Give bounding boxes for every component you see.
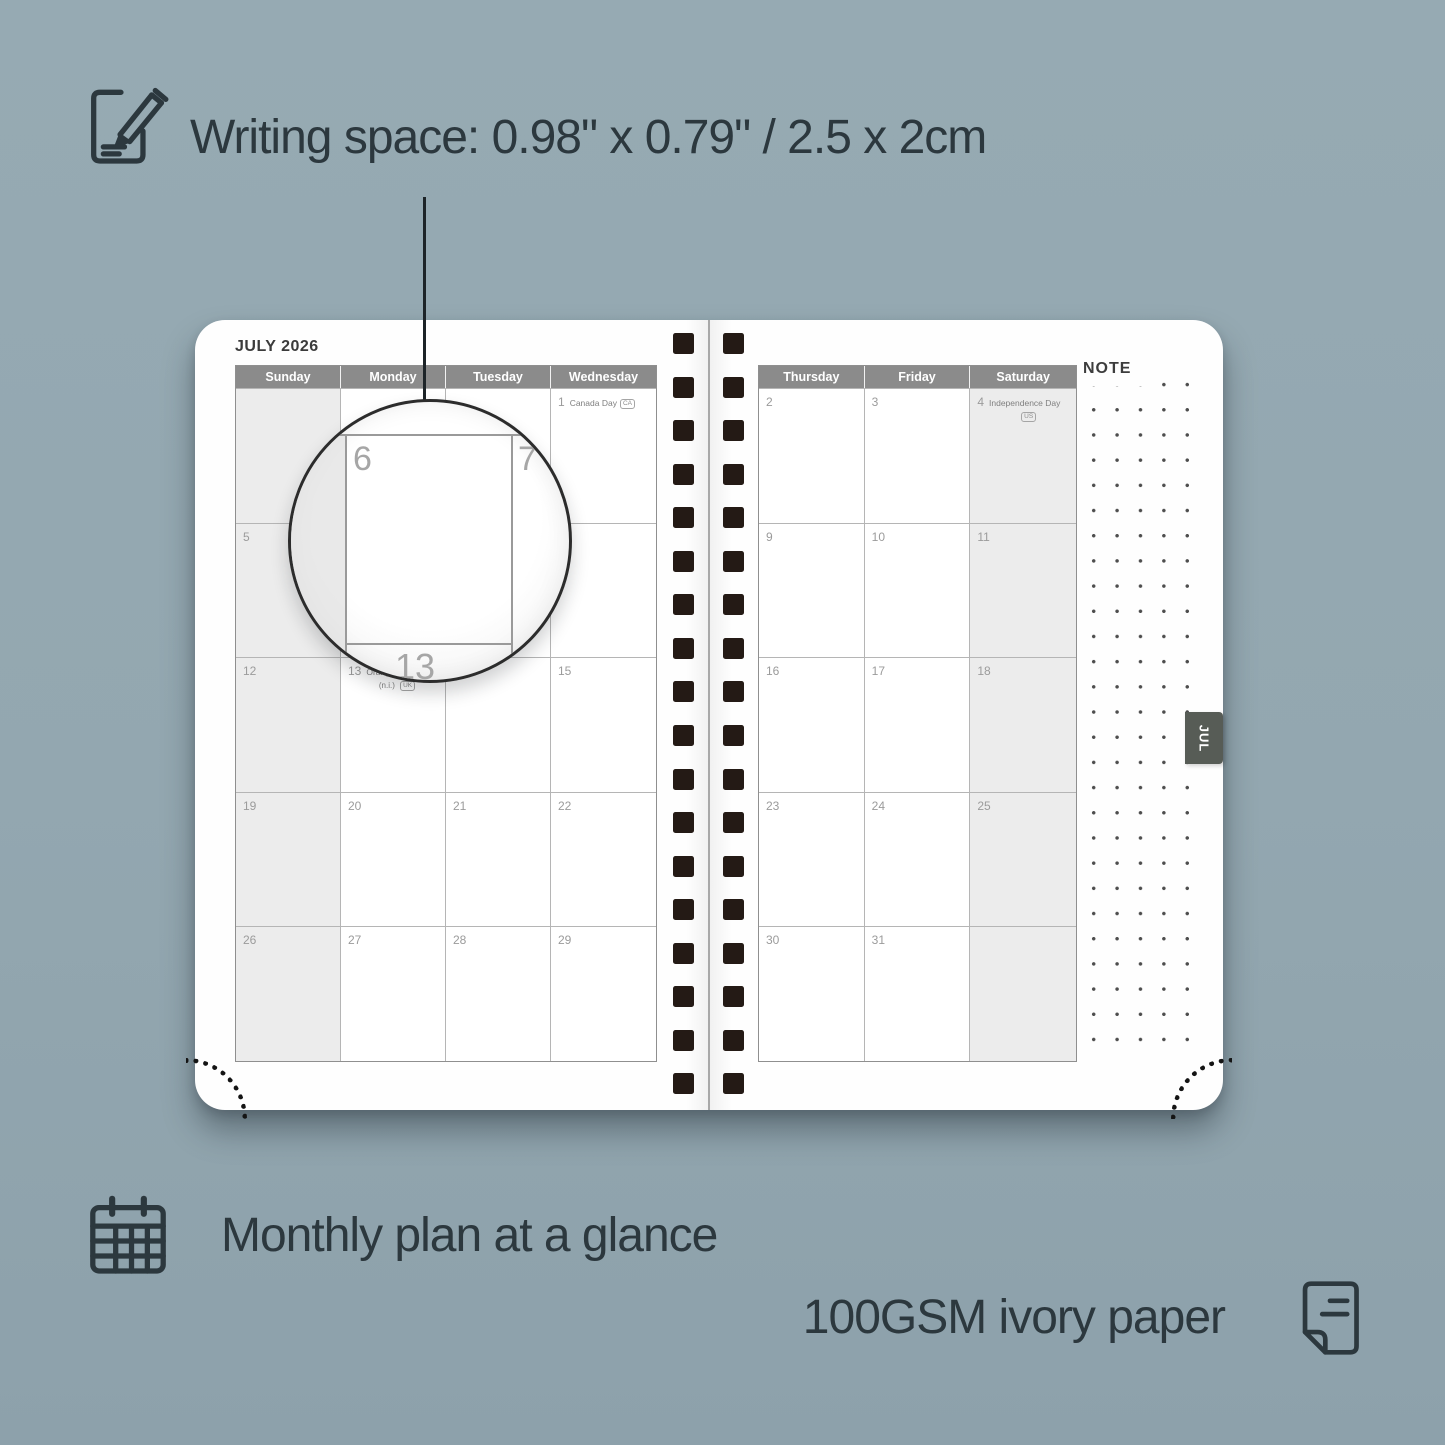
date-number: 4: [977, 395, 984, 409]
spine-gap: [708, 320, 710, 1110]
binding-hole: [673, 551, 694, 572]
date-number: 30: [766, 933, 779, 947]
binding-hole: [723, 638, 744, 659]
day-header: Wednesday: [551, 366, 656, 388]
calendar-icon: [84, 1186, 172, 1282]
writing-space-label: Writing space: 0.98" x 0.79" / 2.5 x 2cm: [190, 110, 986, 165]
binding-hole: [673, 333, 694, 354]
date-number: 29: [558, 933, 571, 947]
date-number: 28: [453, 933, 466, 947]
date-number: 17: [872, 664, 885, 678]
binding-hole: [723, 986, 744, 1007]
binding-hole: [723, 681, 744, 702]
magnified-date: 6: [353, 440, 372, 479]
binding-hole: [723, 507, 744, 528]
date-number: 15: [558, 664, 571, 678]
holiday-label: Independence Day: [989, 398, 1060, 408]
binding-hole: [723, 1030, 744, 1051]
date-number: 9: [766, 530, 773, 544]
date-number: 18: [977, 664, 990, 678]
binding-hole: [673, 725, 694, 746]
holiday-badge: US: [1021, 412, 1036, 422]
binding-hole: [723, 1073, 744, 1094]
calendar-cell: 19: [236, 792, 341, 927]
day-header: Monday: [341, 366, 446, 388]
calendar-cell: 25: [970, 792, 1076, 927]
calendar-cell: 24: [865, 792, 971, 927]
binding-hole: [673, 464, 694, 485]
magnified-shaded-column: [291, 434, 345, 680]
month-tab-jul: JUL: [1185, 712, 1223, 764]
date-number: 27: [348, 933, 361, 947]
binding-hole: [673, 943, 694, 964]
binding-hole: [673, 594, 694, 615]
note-label: NOTE: [1083, 360, 1153, 386]
calendar-cell: 2: [759, 388, 865, 523]
pencil-note-icon: [84, 74, 172, 174]
planner-product-image: Writing space: 0.98" x 0.79" / 2.5 x 2cm…: [0, 0, 1445, 1445]
binding-hole: [673, 1073, 694, 1094]
calendar-cell: 20: [341, 792, 446, 927]
calendar-cell: 22: [551, 792, 656, 927]
date-number: 10: [872, 530, 885, 544]
month-tab-label: JUL: [1197, 724, 1212, 752]
date-number: 25: [977, 799, 990, 813]
grid-line: [291, 434, 569, 436]
date-number: 22: [558, 799, 571, 813]
date-number: 19: [243, 799, 256, 813]
calendar-cell: 3: [865, 388, 971, 523]
binding-hole: [673, 986, 694, 1007]
calendar-cell: 9: [759, 523, 865, 658]
grid-line: [345, 643, 512, 645]
binding-hole: [723, 464, 744, 485]
binding-hole: [673, 899, 694, 920]
calendar-right-page: ThursdayFridaySaturday234Independence Da…: [758, 365, 1077, 1062]
holiday-badge: CA: [620, 399, 635, 409]
calendar-cell: 15: [551, 657, 656, 792]
date-number: 31: [872, 933, 885, 947]
binding-hole: [673, 507, 694, 528]
calendar-cell: [970, 926, 1076, 1061]
calendar-cell: 11: [970, 523, 1076, 658]
perforation-dots-right: [1171, 1058, 1232, 1119]
day-header: Tuesday: [446, 366, 551, 388]
calendar-cell: 28: [446, 926, 551, 1061]
binding-hole: [673, 420, 694, 441]
binding-hole: [723, 899, 744, 920]
binding-hole: [723, 769, 744, 790]
magnifier-circle: 6 7 13: [288, 399, 572, 683]
date-number: 3: [872, 395, 879, 409]
binding-hole: [723, 856, 744, 877]
binding-hole: [673, 1030, 694, 1051]
magnified-date: 7: [518, 440, 537, 479]
binding-hole: [723, 551, 744, 572]
date-number: 16: [766, 664, 779, 678]
magnifier-pointer-line: [423, 197, 426, 402]
date-number: 23: [766, 799, 779, 813]
calendar-cell: 30: [759, 926, 865, 1061]
calendar-cell: 16: [759, 657, 865, 792]
monthly-plan-label: Monthly plan at a glance: [221, 1208, 717, 1263]
calendar-cell: 17: [865, 657, 971, 792]
date-number: 20: [348, 799, 361, 813]
calendar-cell: 29: [551, 926, 656, 1061]
calendar-cell: 26: [236, 926, 341, 1061]
binding-hole: [673, 681, 694, 702]
date-number: 21: [453, 799, 466, 813]
calendar-cell: 10: [865, 523, 971, 658]
binding-hole: [723, 420, 744, 441]
calendar-cell: 18: [970, 657, 1076, 792]
day-header: Thursday: [759, 366, 865, 388]
month-title: JULY 2026: [235, 338, 319, 356]
calendar-cell: 4Independence DayUS: [970, 388, 1076, 523]
binding-hole: [723, 725, 744, 746]
binding-hole: [723, 943, 744, 964]
binding-hole: [723, 377, 744, 398]
date-number: 11: [977, 530, 989, 544]
binding-hole: [723, 812, 744, 833]
binding-hole: [723, 333, 744, 354]
day-header: Friday: [865, 366, 971, 388]
calendar-cell: 27: [341, 926, 446, 1061]
binding-hole: [723, 594, 744, 615]
calendar-cell: 21: [446, 792, 551, 927]
binding-hole: [673, 377, 694, 398]
date-number: 1: [558, 395, 565, 409]
calendar-cell: 31: [865, 926, 971, 1061]
date-number: 12: [243, 664, 256, 678]
date-number: 5: [243, 530, 250, 544]
binding-hole: [673, 769, 694, 790]
paper-sheet-icon: [1291, 1268, 1369, 1368]
binding-hole: [673, 856, 694, 877]
note-dot-grid: [1079, 370, 1189, 1058]
date-number: 24: [872, 799, 885, 813]
binding-hole: [673, 638, 694, 659]
magnified-date: 13: [395, 646, 435, 683]
date-number: 13: [348, 664, 361, 678]
perforation-dots-left: [186, 1058, 247, 1119]
holiday-label: Canada Day: [570, 398, 617, 408]
date-number: 2: [766, 395, 773, 409]
holiday-subtext: (n.i.): [379, 681, 397, 690]
paper-label: 100GSM ivory paper: [803, 1290, 1225, 1345]
day-header: Sunday: [236, 366, 341, 388]
holiday-badge: UK: [400, 681, 415, 691]
binding-hole: [673, 812, 694, 833]
day-header: Saturday: [970, 366, 1076, 388]
calendar-cell: 23: [759, 792, 865, 927]
date-number: 26: [243, 933, 256, 947]
